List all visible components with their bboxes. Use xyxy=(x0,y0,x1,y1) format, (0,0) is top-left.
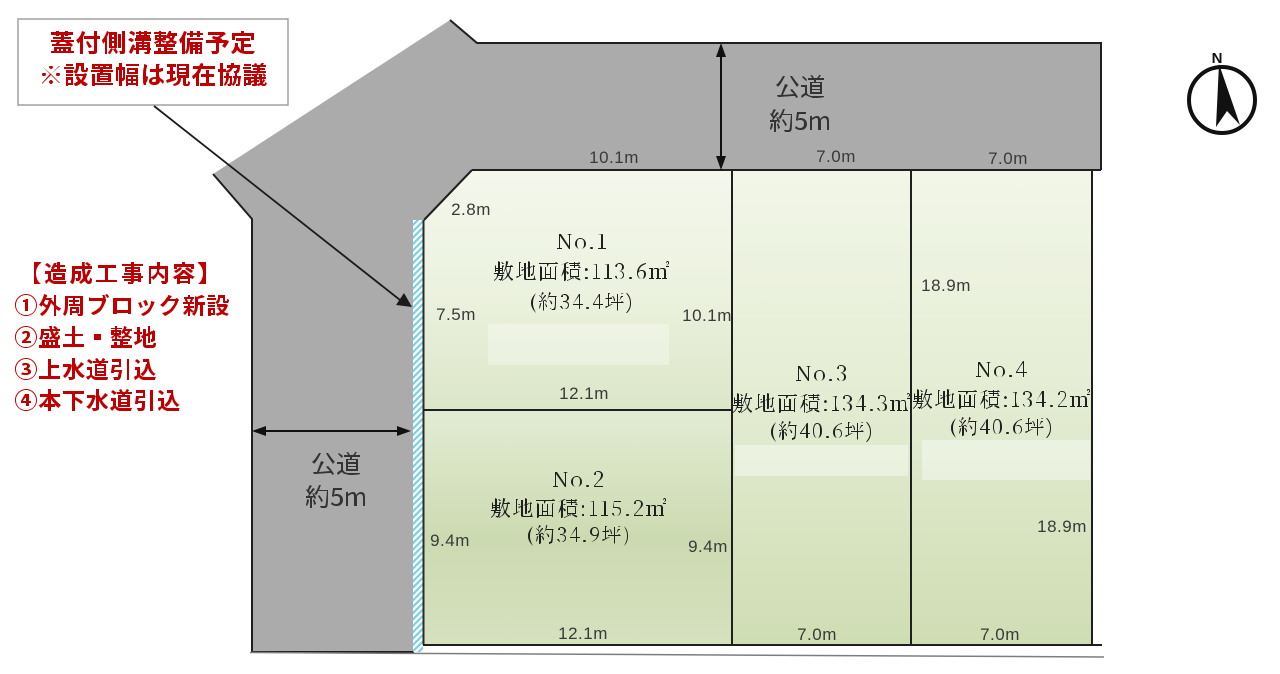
svg-text:7.0m: 7.0m xyxy=(797,625,837,644)
svg-text:7.5m: 7.5m xyxy=(436,305,476,324)
svg-text:N: N xyxy=(1212,50,1223,67)
svg-text:10.1m: 10.1m xyxy=(589,148,639,167)
svg-text:12.1m: 12.1m xyxy=(559,384,609,403)
svg-text:2.8m: 2.8m xyxy=(451,200,491,219)
svg-text:7.0m: 7.0m xyxy=(980,625,1020,644)
svg-text:7.0m: 7.0m xyxy=(988,149,1028,168)
svg-text:18.9m: 18.9m xyxy=(921,276,971,295)
svg-text:18.9m: 18.9m xyxy=(1037,517,1087,536)
svg-text:7.0m: 7.0m xyxy=(816,147,856,166)
svg-text:9.4m: 9.4m xyxy=(430,531,470,550)
svg-text:9.4m: 9.4m xyxy=(688,537,728,556)
svg-text:12.1m: 12.1m xyxy=(558,624,608,643)
svg-text:10.1m: 10.1m xyxy=(682,306,732,325)
